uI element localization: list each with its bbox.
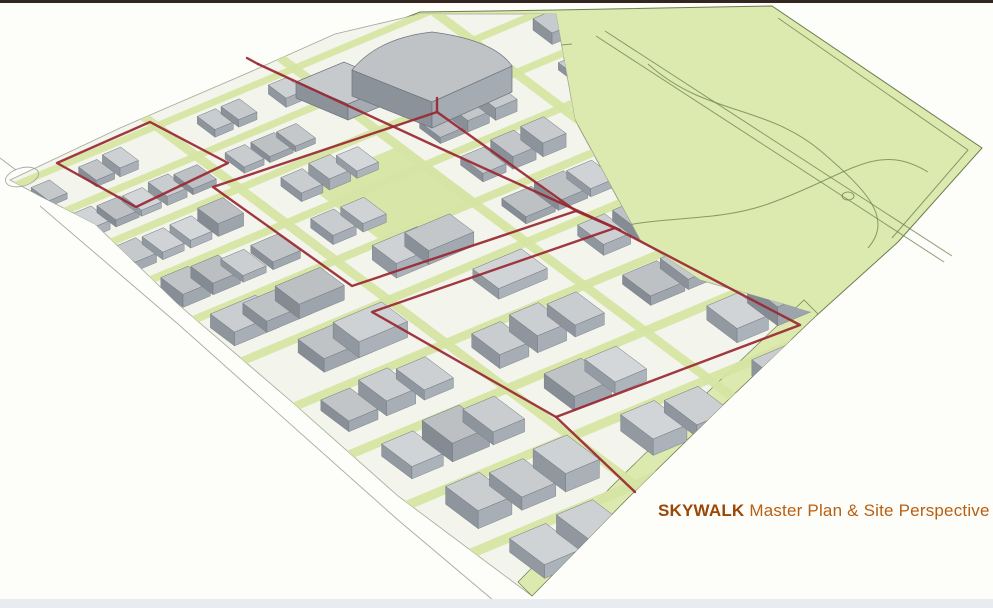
caption-text: Master Plan & Site Perspective (744, 501, 989, 520)
top-border-line (0, 0, 993, 3)
bottom-border-strip (0, 599, 993, 608)
master-plan-slide: SKYWALK Master Plan & Site Perspective (0, 0, 993, 608)
caption: SKYWALK Master Plan & Site Perspective (658, 501, 990, 521)
caption-brand: SKYWALK (658, 501, 744, 520)
